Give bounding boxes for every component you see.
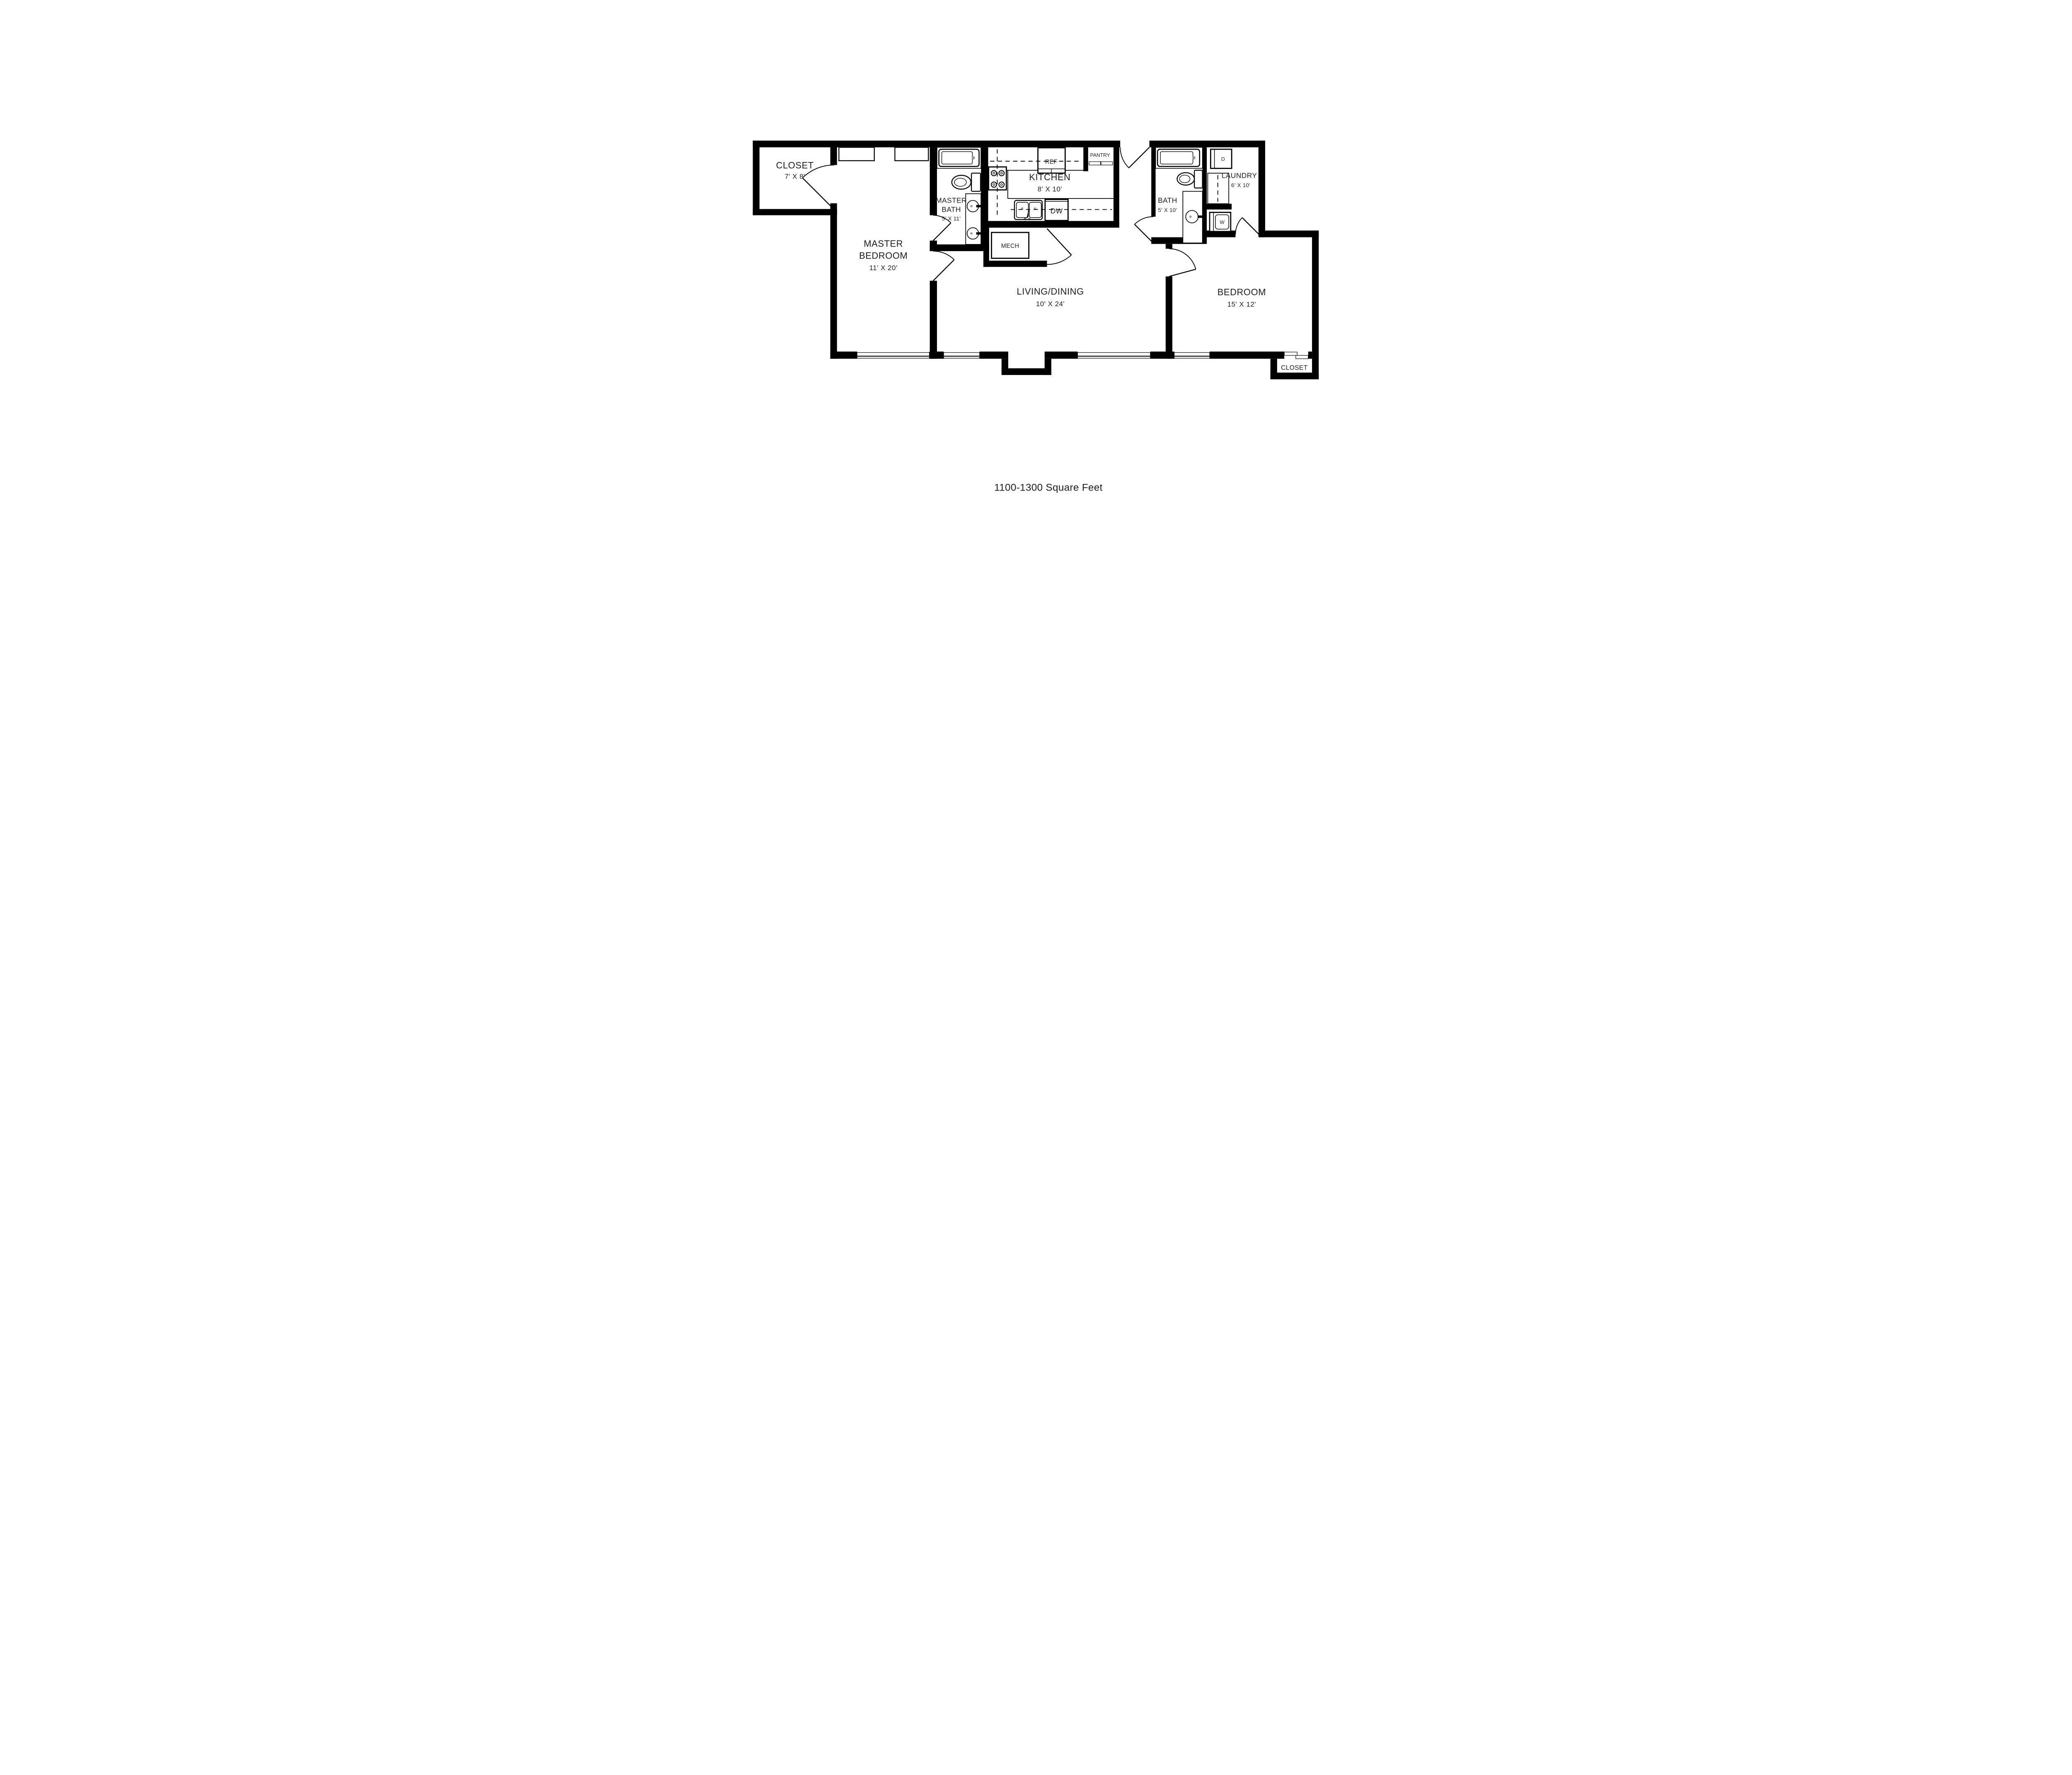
faucet-icon (976, 232, 981, 235)
wall-bottom-seg1 (830, 351, 857, 358)
door-laundry (1235, 218, 1259, 234)
faucet-icon (976, 205, 981, 208)
wardrobe-right (895, 148, 928, 161)
tub-drain (1192, 156, 1196, 160)
label-bedroom-dims: 15' X 12' (1227, 300, 1256, 308)
wall-kitchen-right (1113, 148, 1119, 228)
door-bedroom (1169, 249, 1196, 276)
label-washer: W (1220, 219, 1225, 225)
window-bedroom (1174, 353, 1210, 358)
label-kitchen-dims: 8' X 10' (1038, 185, 1062, 193)
wall-masterbath-bottom (930, 244, 989, 251)
wardrobe-left (839, 148, 874, 161)
label-laundry: LAUNDRY (1222, 171, 1257, 179)
wall-bottom-seg6 (1210, 351, 1284, 358)
label-master-bath-dims: 5' X 11' (942, 215, 961, 222)
wall-closet-right-upper (830, 148, 837, 165)
door-entry (1120, 148, 1149, 168)
wall-masterbed-bath-divider-upper (930, 148, 937, 215)
label-pantry: PANTRY (1090, 152, 1110, 158)
label-refrigerator: REF (1045, 159, 1058, 165)
wall-living-bedroom-stub (1166, 244, 1172, 249)
caption-square-feet: 1100-1300 Square Feet (994, 482, 1102, 493)
wall-laundry-right (1259, 140, 1265, 237)
door-master-bedroom (933, 251, 954, 281)
wall-top-left (753, 140, 1121, 147)
label-bath: BATH (1158, 196, 1177, 204)
wall-laundry-stub (1206, 204, 1232, 210)
wall-alcove-bottom (1002, 368, 1051, 375)
wall-bath-left (1151, 148, 1155, 217)
label-living-dining-dims: 10' X 24' (1036, 300, 1065, 308)
windows (857, 162, 1308, 359)
label-dishwasher: DW (1051, 207, 1063, 215)
bathtub-basin (1160, 152, 1193, 164)
wall-bedroom-closet-bottom (1271, 372, 1319, 379)
sink-drain (970, 205, 973, 208)
label-master-bath-2: BATH (942, 205, 961, 213)
wall-masterbed-divider-lower (930, 281, 937, 359)
window-living-left (944, 353, 980, 358)
floor-plan-page: CLOSET 7' X 8' MASTER BEDROOM 11' X 20' … (704, 0, 1368, 512)
wall-bottom-seg3 (980, 351, 1008, 358)
door-mech (1047, 229, 1072, 265)
wall-mech-bottom (983, 261, 1047, 267)
wall-closet-left (753, 140, 760, 215)
wall-bottom-seg2 (929, 351, 944, 358)
window-living-right (1077, 353, 1150, 358)
label-laundry-dims: 6' X 10' (1231, 182, 1250, 188)
bifold-door-pantry (1089, 162, 1113, 165)
door-bath (1135, 217, 1153, 243)
toilet-bowl (1179, 175, 1190, 183)
sink-icon (1186, 210, 1198, 223)
wall-living-bedroom-divider (1166, 276, 1172, 359)
label-bedroom: BEDROOM (1218, 287, 1266, 297)
toilet-bowl (954, 178, 966, 186)
door-master-closet (803, 165, 834, 209)
label-master-closet-dims: 7' X 8' (784, 173, 805, 181)
label-mechanical: MECH (1001, 243, 1019, 249)
sink-drain (1189, 215, 1192, 218)
label-bedroom-closet: CLOSET (1281, 364, 1308, 371)
tub-drain (972, 156, 975, 160)
sink-drain (970, 232, 973, 235)
wall-bath-laundry-divider (1203, 148, 1207, 237)
wall-bedroom-right (1312, 230, 1319, 379)
wall-bottom-seg7 (1308, 351, 1312, 358)
wall-bottom-seg4 (1045, 351, 1078, 358)
label-master-closet: CLOSET (776, 160, 814, 170)
laundry-fixtures (1206, 149, 1232, 232)
floor-plan-drawing: CLOSET 7' X 8' MASTER BEDROOM 11' X 20' … (704, 0, 1368, 512)
label-master-bath-1: MASTER (936, 196, 967, 204)
wall-top-right (1150, 140, 1265, 147)
label-master-bedroom-dims: 11' X 20' (869, 264, 898, 272)
label-living-dining: LIVING/DINING (1017, 286, 1084, 297)
toilet-tank (1194, 170, 1203, 188)
sink-basin-right (1029, 202, 1041, 218)
toilet-tank (971, 173, 980, 191)
sliding-door-bedroom-closet (1284, 352, 1308, 359)
wall-pantry-left (1083, 148, 1088, 172)
window-master-bedroom (857, 353, 929, 358)
master-bedroom-wardrobes (839, 148, 928, 161)
label-dryer: D (1221, 156, 1225, 162)
wall-bottom-seg5 (1150, 351, 1174, 358)
label-bath-dims: 5' X 10' (1158, 207, 1177, 213)
wall-bedroom-top (1260, 230, 1319, 237)
label-master-bedroom-2: BEDROOM (859, 251, 908, 261)
wall-kitchen-living (984, 221, 1119, 227)
label-master-bedroom-1: MASTER (864, 239, 903, 249)
label-kitchen: KITCHEN (1029, 172, 1070, 182)
bathtub-basin (942, 152, 973, 164)
sink-basin-left (1017, 202, 1029, 218)
wall-left-outer (830, 209, 837, 358)
wall-closet-bottom (753, 209, 837, 215)
bath-fixtures (1156, 148, 1203, 243)
faucet-icon (1198, 215, 1203, 218)
